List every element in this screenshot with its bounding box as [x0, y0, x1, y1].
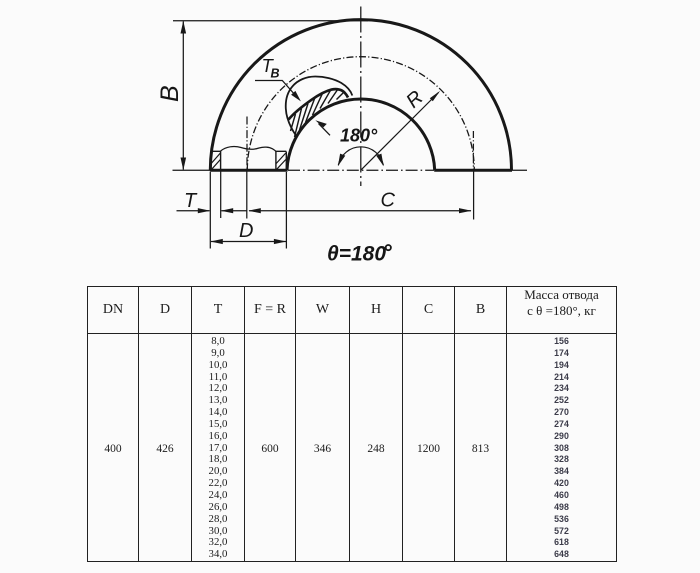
svg-text:180°: 180°	[340, 126, 378, 146]
svg-text:T: T	[184, 190, 198, 212]
svg-text:B: B	[156, 85, 184, 102]
svg-text:C: C	[381, 190, 396, 212]
svg-text:B: B	[271, 67, 280, 81]
svg-text:D: D	[239, 220, 253, 242]
svg-text:R: R	[402, 87, 427, 113]
svg-text:θ=180: θ=180	[327, 243, 386, 266]
